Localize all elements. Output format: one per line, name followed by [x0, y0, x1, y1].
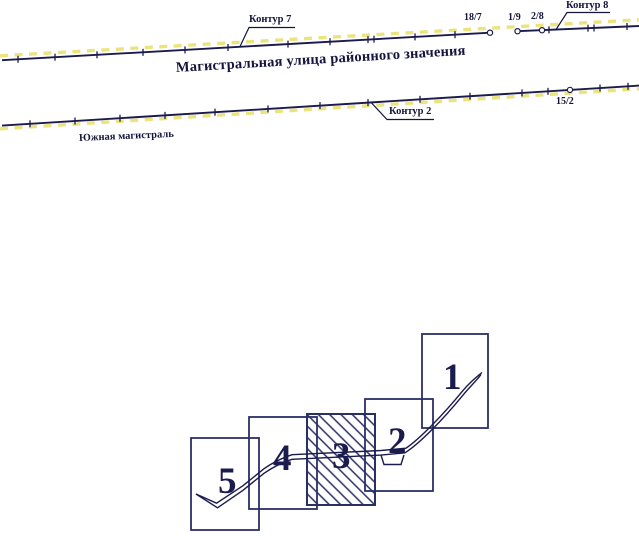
point-2-8-label: 2/8 [531, 11, 544, 22]
contour-2-label: Контур 2 [389, 106, 431, 118]
plan-drawing: Магистральная улица районного значения Ю… [0, 0, 639, 536]
point-18-7-label: 18/7 [464, 12, 482, 23]
sheet-3-number: 3 [332, 438, 351, 475]
point-1-9-circle [515, 29, 520, 34]
sheet-2-number: 2 [388, 423, 407, 460]
sheet-1-number: 1 [443, 359, 462, 396]
contour-8-label: Контур 8 [566, 0, 608, 12]
sheet-5-number: 5 [218, 463, 237, 500]
contour-7-8-dashed-highlight [0, 20, 639, 56]
point-2-8-circle [539, 28, 544, 33]
contour-7-label: Контур 7 [249, 14, 291, 26]
point-15-2-circle [567, 87, 572, 92]
sheet-4-number: 4 [273, 440, 292, 477]
point-15-2-label: 15/2 [556, 96, 574, 107]
point-18-7-circle [487, 30, 492, 35]
plan-linework [0, 0, 639, 536]
point-1-9-label: 1/9 [508, 12, 521, 23]
